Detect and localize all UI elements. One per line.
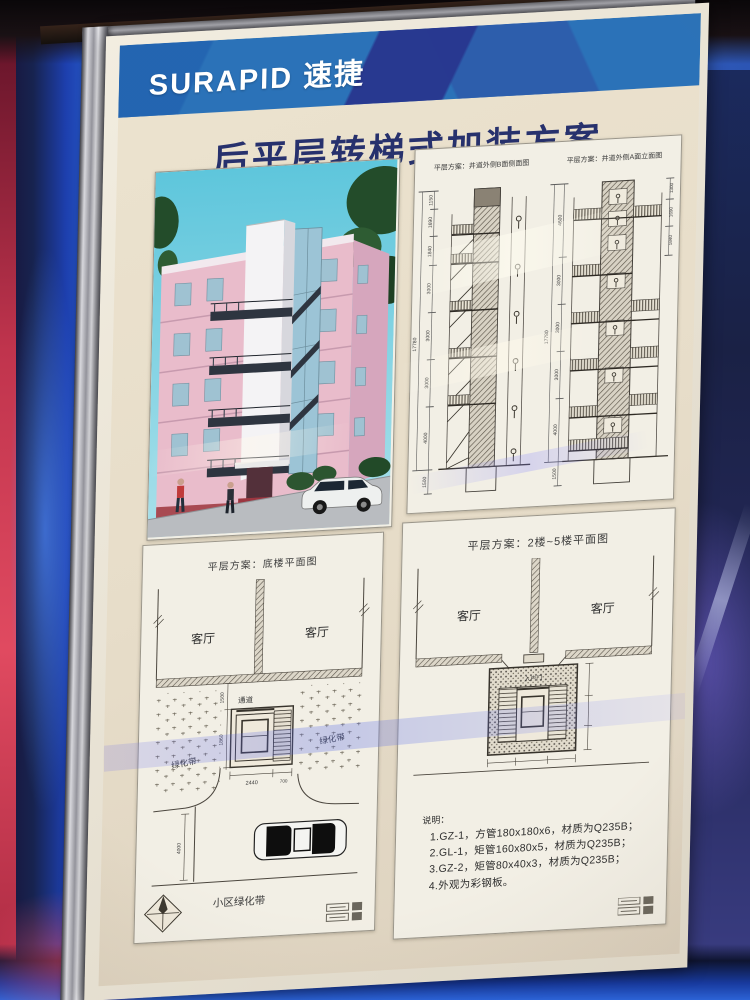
brand-logo: SURAPID 速捷: [148, 50, 365, 104]
svg-text:3000: 3000: [424, 377, 430, 389]
elevator-shaft-plan: 入户门: [488, 664, 578, 755]
room-label: 客厅: [591, 600, 615, 616]
svg-text:1150: 1150: [428, 195, 434, 206]
green-belt-left: [154, 690, 222, 796]
dim-base-b: 1500: [422, 476, 428, 488]
upper-floor-plan-drawing: 客厅 客厅 入户门: [397, 551, 672, 805]
green-belt-right: [298, 682, 362, 774]
svg-text:3000: 3000: [426, 283, 432, 295]
framed-poster: SURAPID 速捷 后平层转梯式加装方案: [90, 7, 707, 995]
svg-text:1840: 1840: [668, 234, 673, 245]
dim-base-a: 1500: [552, 468, 558, 480]
elevation-drawing-a: 17780 4600 3000 3000 3000 4000 1500 1300…: [541, 178, 675, 487]
dim-label: 700: [280, 778, 288, 783]
ground-floor-plan-panel: 平层方案：底楼平面图: [133, 532, 384, 945]
svg-text:3000: 3000: [554, 369, 560, 381]
dim-label: 4000: [176, 843, 182, 855]
community-green-label: 小区绿化带: [213, 894, 266, 910]
compass-icon: [144, 894, 182, 933]
room-label: 客厅: [191, 630, 215, 646]
elevation-drawings: 17780 1150 1690 1840 3000 3000 3000 4000…: [407, 162, 678, 512]
svg-text:1690: 1690: [668, 206, 673, 217]
person-figure-icons: [511, 216, 521, 461]
svg-text:4000: 4000: [423, 432, 429, 444]
svg-text:1300: 1300: [669, 182, 674, 193]
photo-of-poster-scene: SURAPID 速捷 后平层转梯式加装方案: [0, 0, 750, 1000]
room-label: 客厅: [305, 624, 329, 640]
rendering-panel: [147, 158, 401, 541]
svg-text:3000: 3000: [555, 322, 561, 334]
svg-text:1840: 1840: [427, 246, 433, 258]
dim-total-a: 17780: [544, 330, 550, 344]
ground-floor-plan-drawing: 客厅 客厅 通道 1500 1860: [135, 571, 381, 937]
entrance-door: [246, 467, 273, 501]
elevation-panel: 平层方案：井道外侧B面侧面图 平层方案：井道外侧A面立面图: [406, 134, 682, 514]
svg-text:4600: 4600: [558, 214, 564, 226]
svg-text:3000: 3000: [425, 330, 431, 342]
poster: SURAPID 速捷 后平层转梯式加装方案: [99, 13, 701, 986]
elevator-shaft-plan: [230, 706, 293, 768]
car-top-view: [254, 819, 347, 860]
dim-label: 2440: [246, 780, 258, 787]
room-label: 客厅: [457, 607, 481, 623]
certification-stamp-icon: [326, 902, 361, 921]
dim-total-b: 17780: [412, 337, 418, 351]
building-rendering-illustration: [148, 159, 398, 538]
notes-list: 1.GZ-1，方管180x180x6，材质为Q235B； 2.GL-1，矩管16…: [421, 817, 652, 895]
svg-text:4000: 4000: [553, 424, 559, 436]
svg-text:1690: 1690: [428, 217, 434, 229]
passage-label: 通道: [238, 694, 254, 705]
upper-floor-plan-panel: 平层方案：2楼~5楼平面图: [393, 507, 676, 939]
elevator-shaft-tower: [241, 219, 296, 480]
svg-text:3000: 3000: [556, 274, 562, 286]
notes-block: 说明： 1.GZ-1，方管180x180x6，材质为Q235B； 2.GL-1，…: [421, 802, 652, 895]
certification-stamp-icon: [618, 896, 656, 918]
